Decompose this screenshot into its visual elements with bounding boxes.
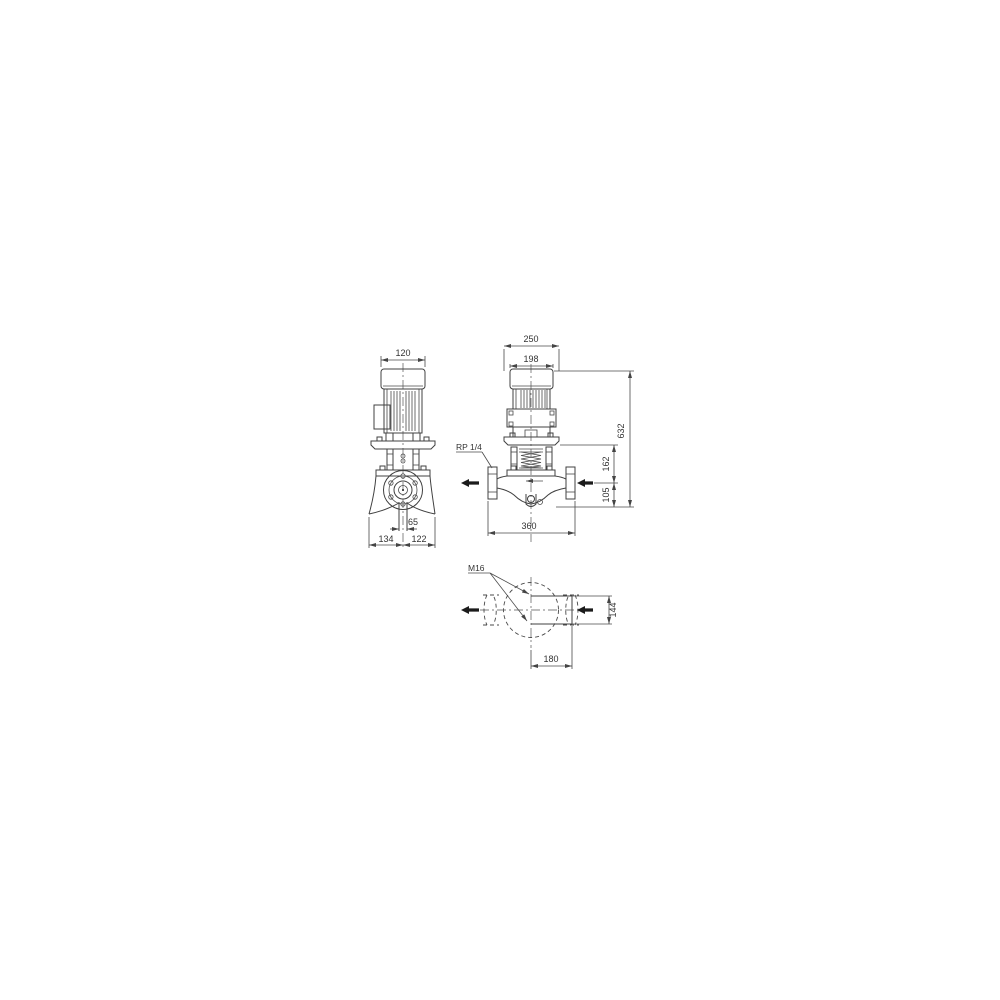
dim-label-base-right: 122 — [411, 534, 426, 544]
plan-flow-arrow-inlet — [577, 606, 593, 614]
flow-arrow-inlet — [577, 479, 593, 487]
front-view: RP 1/4 250 198 360 — [456, 334, 634, 542]
dim-label-width-fan-cover: 198 — [523, 354, 538, 364]
pump-drawing-page: 120 65 134 122 — [0, 0, 1000, 1000]
dim-label-bolt-spacing: 144 — [608, 602, 618, 617]
dim-label-width-outer: 250 — [523, 334, 538, 344]
dim-label-height-port: 105 — [601, 487, 611, 502]
plug-label: RP 1/4 — [456, 442, 482, 452]
plan-flow-arrow-outlet — [461, 606, 479, 614]
suction-flange — [488, 467, 497, 499]
port-flange-face — [384, 471, 423, 510]
plug-callout: RP 1/4 — [456, 442, 492, 468]
dim-label-port-stub: 65 — [408, 517, 418, 527]
flow-arrow-outlet — [461, 479, 479, 487]
motor-fins-front — [521, 390, 545, 408]
dim-width-outer: 250 — [504, 334, 559, 371]
pump-dimensional-drawing: 120 65 134 122 — [340, 330, 660, 680]
dim-label-motor-width: 120 — [395, 348, 410, 358]
front-coupling — [511, 447, 552, 470]
side-volute — [369, 466, 435, 531]
discharge-flange — [566, 467, 575, 499]
terminal-box — [374, 405, 390, 429]
bolt-label: M16 — [468, 563, 485, 573]
front-volute — [488, 466, 575, 507]
dim-label-height-total: 632 — [616, 423, 626, 438]
dim-label-base-left: 134 — [378, 534, 393, 544]
side-view: 120 65 134 122 — [369, 348, 435, 548]
front-motor — [504, 369, 559, 445]
dim-width-fan-cover: 198 — [510, 354, 553, 368]
plan-dimensions: 144 180 — [531, 596, 618, 669]
plan-view: M16 144 180 — [461, 563, 618, 669]
dim-base-length: 180 — [531, 626, 572, 669]
dim-label-height-mid: 162 — [601, 456, 611, 471]
dim-port-stub: 65 — [390, 517, 418, 529]
dim-label-base-length: 180 — [543, 654, 558, 664]
bolt-callout: M16 — [468, 563, 529, 621]
dim-bolt-spacing: 144 — [608, 596, 618, 624]
dim-label-port-to-port: 360 — [521, 521, 536, 531]
dim-base-widths: 134 122 — [369, 517, 435, 548]
